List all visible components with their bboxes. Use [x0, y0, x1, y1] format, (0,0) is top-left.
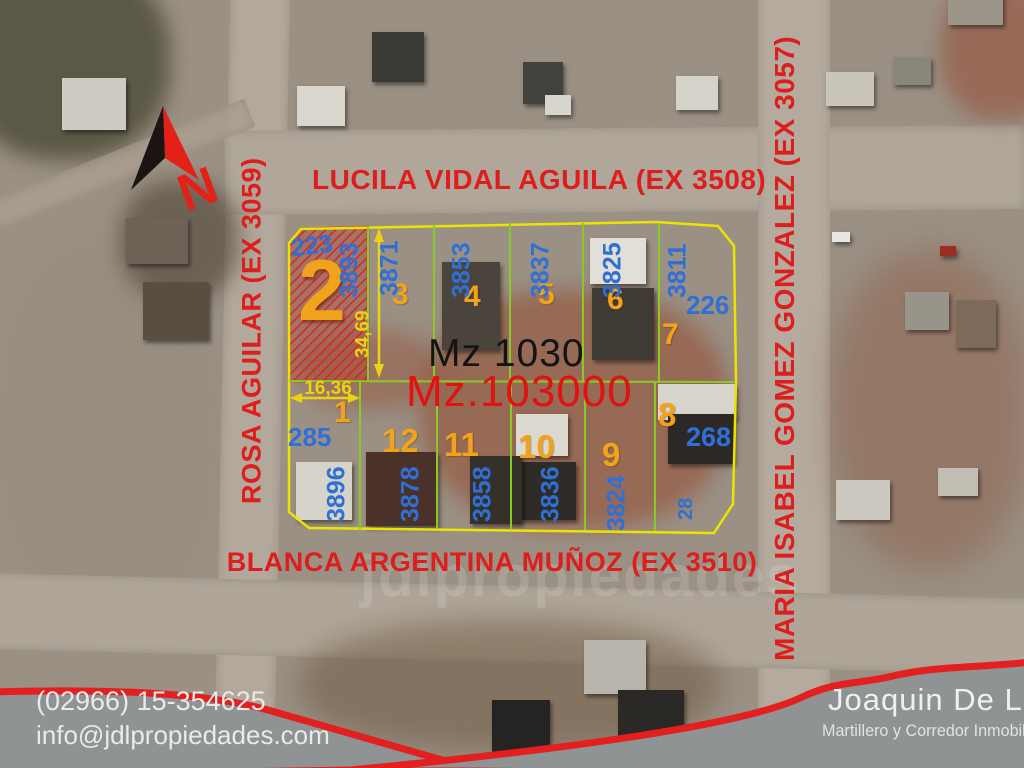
agent-name: Joaquin De Luc: [828, 684, 1024, 715]
contact-email[interactable]: info@jdlpropiedades.com: [36, 722, 330, 748]
satellite-map: N jdlpropiedades LUCILA VIDAL AGUILA (EX…: [0, 0, 1024, 768]
footer-banner: [0, 0, 1024, 768]
contact-phone: (02966) 15-354625: [36, 688, 266, 715]
agent-title: Martillero y Corredor Inmobilia: [822, 722, 1024, 739]
